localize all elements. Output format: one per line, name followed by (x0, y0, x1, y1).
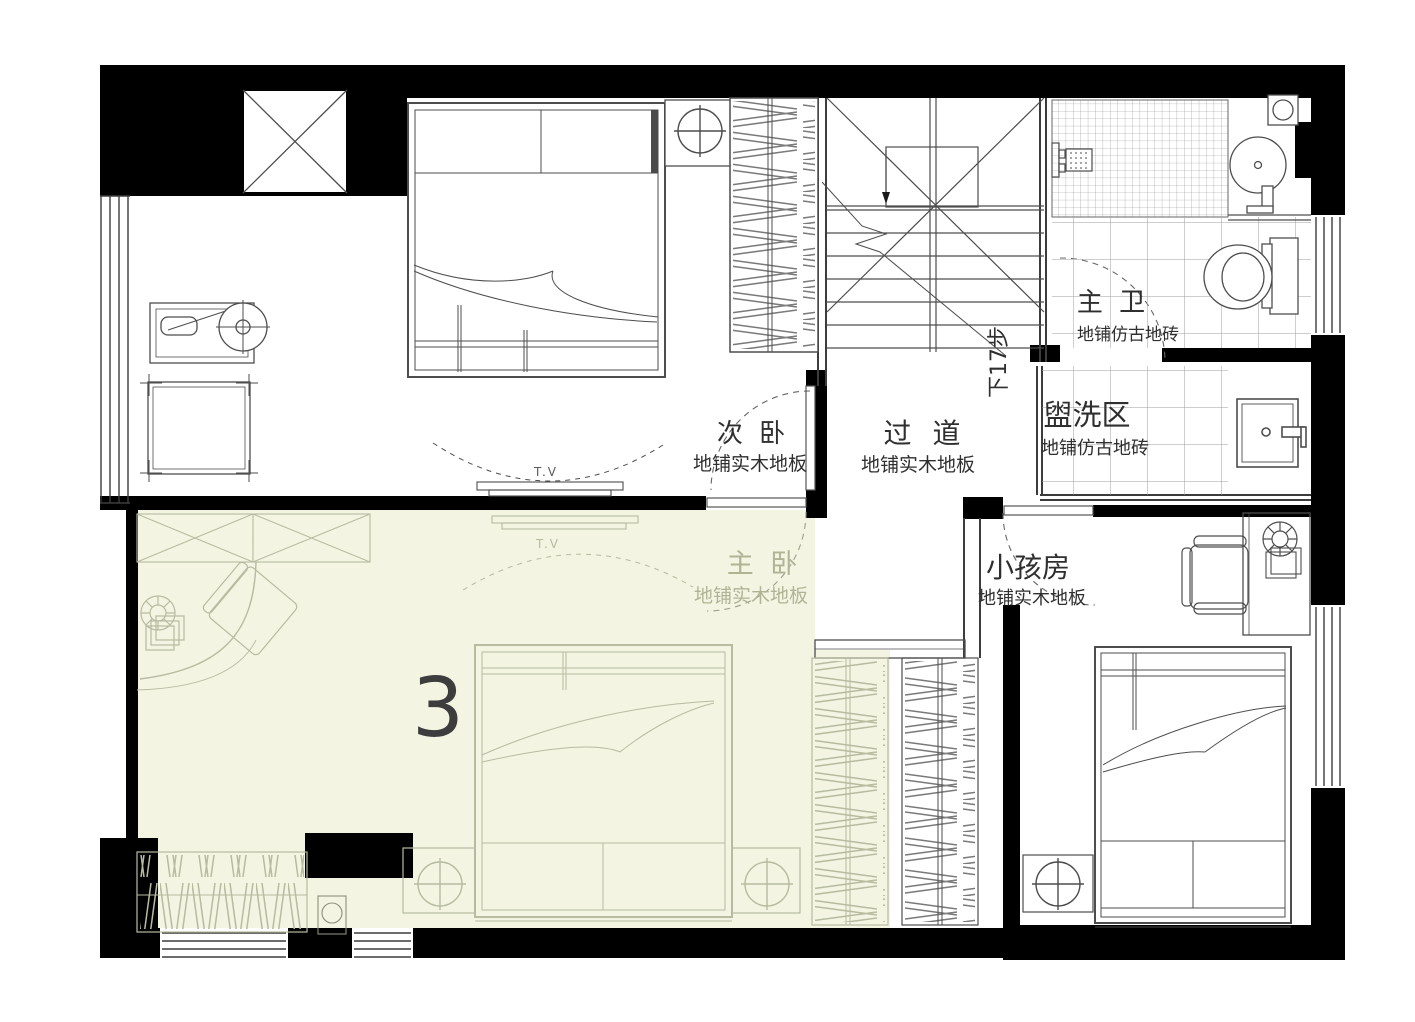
door-leaf-master-bedroom (707, 498, 806, 507)
bed (408, 103, 665, 377)
floor-label-master-bedroom: 地铺实木地板 (694, 585, 808, 607)
room-label-wash-area: 盥洗区 (1043, 398, 1130, 432)
dresser-desk (150, 300, 270, 363)
unit-number: 3 (412, 661, 464, 756)
wardrobe-right-strip (812, 658, 888, 925)
nightstand (1023, 855, 1093, 912)
wardrobe-bottom (137, 852, 307, 932)
room-label-master-bath: 主 卫 (1077, 288, 1149, 318)
square-sink-icon (1237, 399, 1306, 467)
room-label-master-bedroom: 主 卧 (727, 549, 802, 580)
stool-and-papers (1263, 522, 1301, 578)
floor-label-wash-area: 地铺仿古地砖 (1041, 438, 1149, 459)
floor-label-master-bath: 地铺仿古地砖 (1077, 325, 1179, 345)
cabinet-box-icon (1268, 95, 1298, 125)
tv-label-master: T.V (535, 537, 560, 551)
floor-plan-drawing: 下17步 (0, 0, 1415, 1022)
floor-label-corridor: 地铺实木地板 (861, 454, 975, 476)
swivel-stool-icon (1263, 522, 1297, 556)
room-label-corridor: 过 道 (884, 417, 967, 450)
bed (1095, 647, 1291, 927)
floor-plan-canvas: 下17步 (0, 0, 1415, 1022)
wardrobe (730, 98, 818, 352)
door-leaf-secondary-bedroom (806, 386, 815, 490)
floor-label-secondary-bedroom: 地铺实木地板 (693, 453, 807, 475)
room-label-secondary-bedroom: 次 卧 (717, 419, 789, 449)
tv-label-secondary: T.V (533, 465, 558, 479)
stair-down-arrow-icon (882, 192, 890, 204)
shaft-x-icon (243, 90, 347, 193)
nightstand (665, 100, 738, 166)
desk-chair (1182, 536, 1248, 614)
lamp-icon (1032, 858, 1084, 910)
side-table (140, 374, 258, 482)
stair-note: 下17步 (987, 326, 1012, 398)
door-leaf-kids-room (1004, 506, 1093, 515)
room-label-kids-room: 小孩房 (986, 551, 1070, 584)
wardrobe (902, 658, 978, 925)
staircase (822, 98, 1044, 356)
floor-label-kids-room: 地铺实木地板 (978, 588, 1086, 609)
